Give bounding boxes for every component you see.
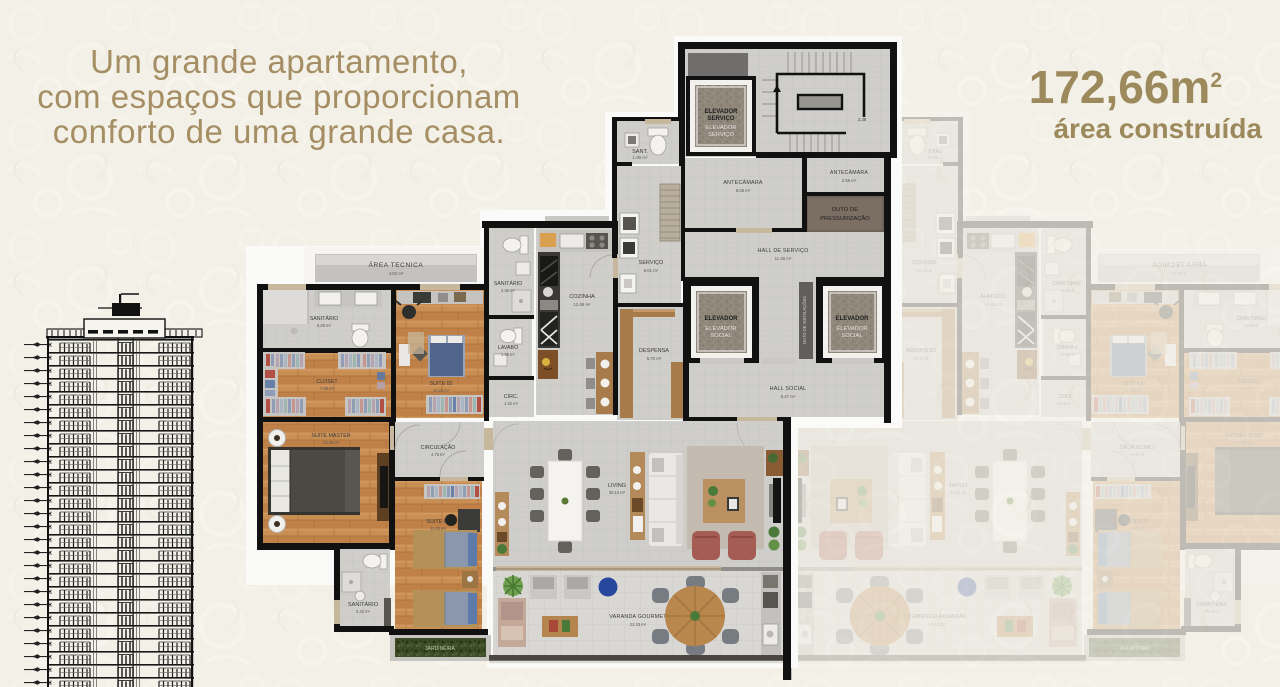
svg-text:SANITÁRIO: SANITÁRIO bbox=[348, 601, 379, 608]
svg-text:5.70 m²: 5.70 m² bbox=[647, 356, 662, 361]
svg-text:8.08 m²: 8.08 m² bbox=[736, 188, 751, 193]
svg-text:VARANDA GOURMET: VARANDA GOURMET bbox=[609, 614, 667, 620]
svg-text:SOCIAL: SOCIAL bbox=[710, 333, 732, 339]
svg-text:SERVIÇO: SERVIÇO bbox=[708, 132, 734, 138]
svg-text:SANITÁRIO: SANITÁRIO bbox=[494, 280, 523, 287]
svg-text:DUTO DE INSTALAÇÕES: DUTO DE INSTALAÇÕES bbox=[802, 296, 807, 344]
svg-text:COZINHA: COZINHA bbox=[569, 294, 595, 300]
svg-text:DESPENSA: DESPENSA bbox=[639, 348, 669, 354]
svg-text:ELEVADOR: ELEVADOR bbox=[705, 316, 739, 322]
svg-text:PRESSURIZAÇÃO: PRESSURIZAÇÃO bbox=[820, 215, 870, 222]
svg-text:SANITÁRIO: SANITÁRIO bbox=[310, 315, 339, 322]
svg-text:1.32 m²: 1.32 m² bbox=[504, 401, 519, 406]
svg-text:SUITE 02: SUITE 02 bbox=[430, 381, 453, 387]
svg-text:DUTO DE: DUTO DE bbox=[832, 207, 858, 213]
svg-text:ANTECÂMARA: ANTECÂMARA bbox=[830, 169, 868, 176]
svg-text:36.13 m²: 36.13 m² bbox=[609, 490, 626, 495]
svg-text:ELEVADOR: ELEVADOR bbox=[705, 125, 736, 131]
svg-text:6.01 m²: 6.01 m² bbox=[644, 268, 659, 273]
svg-text:ÁREA TECNICA: ÁREA TECNICA bbox=[369, 260, 424, 269]
svg-text:CLOSET: CLOSET bbox=[316, 379, 338, 385]
svg-text:2.38: 2.38 bbox=[858, 117, 867, 122]
svg-text:22.33 m²: 22.33 m² bbox=[630, 622, 647, 627]
svg-text:6.00 m²: 6.00 m² bbox=[317, 323, 332, 328]
svg-text:HALL DE SERVIÇO: HALL DE SERVIÇO bbox=[758, 248, 809, 254]
svg-text:SERVIÇO: SERVIÇO bbox=[639, 260, 664, 266]
svg-text:ANTECÂMARA: ANTECÂMARA bbox=[723, 179, 763, 186]
svg-text:1.90 m²: 1.90 m² bbox=[633, 155, 648, 160]
svg-text:4.76 m²: 4.76 m² bbox=[431, 452, 446, 457]
svg-text:1.98 m²: 1.98 m² bbox=[501, 352, 516, 357]
svg-text:HALL SOCIAL: HALL SOCIAL bbox=[770, 386, 807, 392]
svg-text:ELEVADOR: ELEVADOR bbox=[705, 109, 739, 115]
svg-text:ELEVADOR: ELEVADOR bbox=[836, 316, 870, 322]
svg-text:LAVABO: LAVABO bbox=[498, 345, 518, 351]
svg-text:CIRCULAÇÃO: CIRCULAÇÃO bbox=[421, 444, 456, 451]
svg-text:2.58 m²: 2.58 m² bbox=[842, 178, 857, 183]
svg-text:SOCIAL: SOCIAL bbox=[841, 333, 863, 339]
svg-text:SERVIÇO: SERVIÇO bbox=[708, 116, 735, 122]
svg-text:10.20 m²: 10.20 m² bbox=[433, 388, 450, 393]
svg-text:3.42 m²: 3.42 m² bbox=[356, 609, 371, 614]
svg-text:7.49 m²: 7.49 m² bbox=[320, 386, 335, 391]
svg-text:12.65 m²: 12.65 m² bbox=[574, 302, 592, 307]
svg-text:11.46 m²: 11.46 m² bbox=[775, 256, 792, 261]
svg-text:JARDINEIRA: JARDINEIRA bbox=[425, 646, 455, 652]
svg-text:4.02 m²: 4.02 m² bbox=[389, 271, 404, 276]
svg-text:5.47 m²: 5.47 m² bbox=[781, 394, 796, 399]
svg-text:CIRC.: CIRC. bbox=[504, 394, 518, 400]
svg-text:LIVING: LIVING bbox=[608, 483, 626, 489]
svg-text:ELEVADOR: ELEVADOR bbox=[705, 326, 736, 332]
svg-text:ELEVADOR: ELEVADOR bbox=[836, 326, 867, 332]
svg-text:3.06 m²: 3.06 m² bbox=[501, 288, 516, 293]
